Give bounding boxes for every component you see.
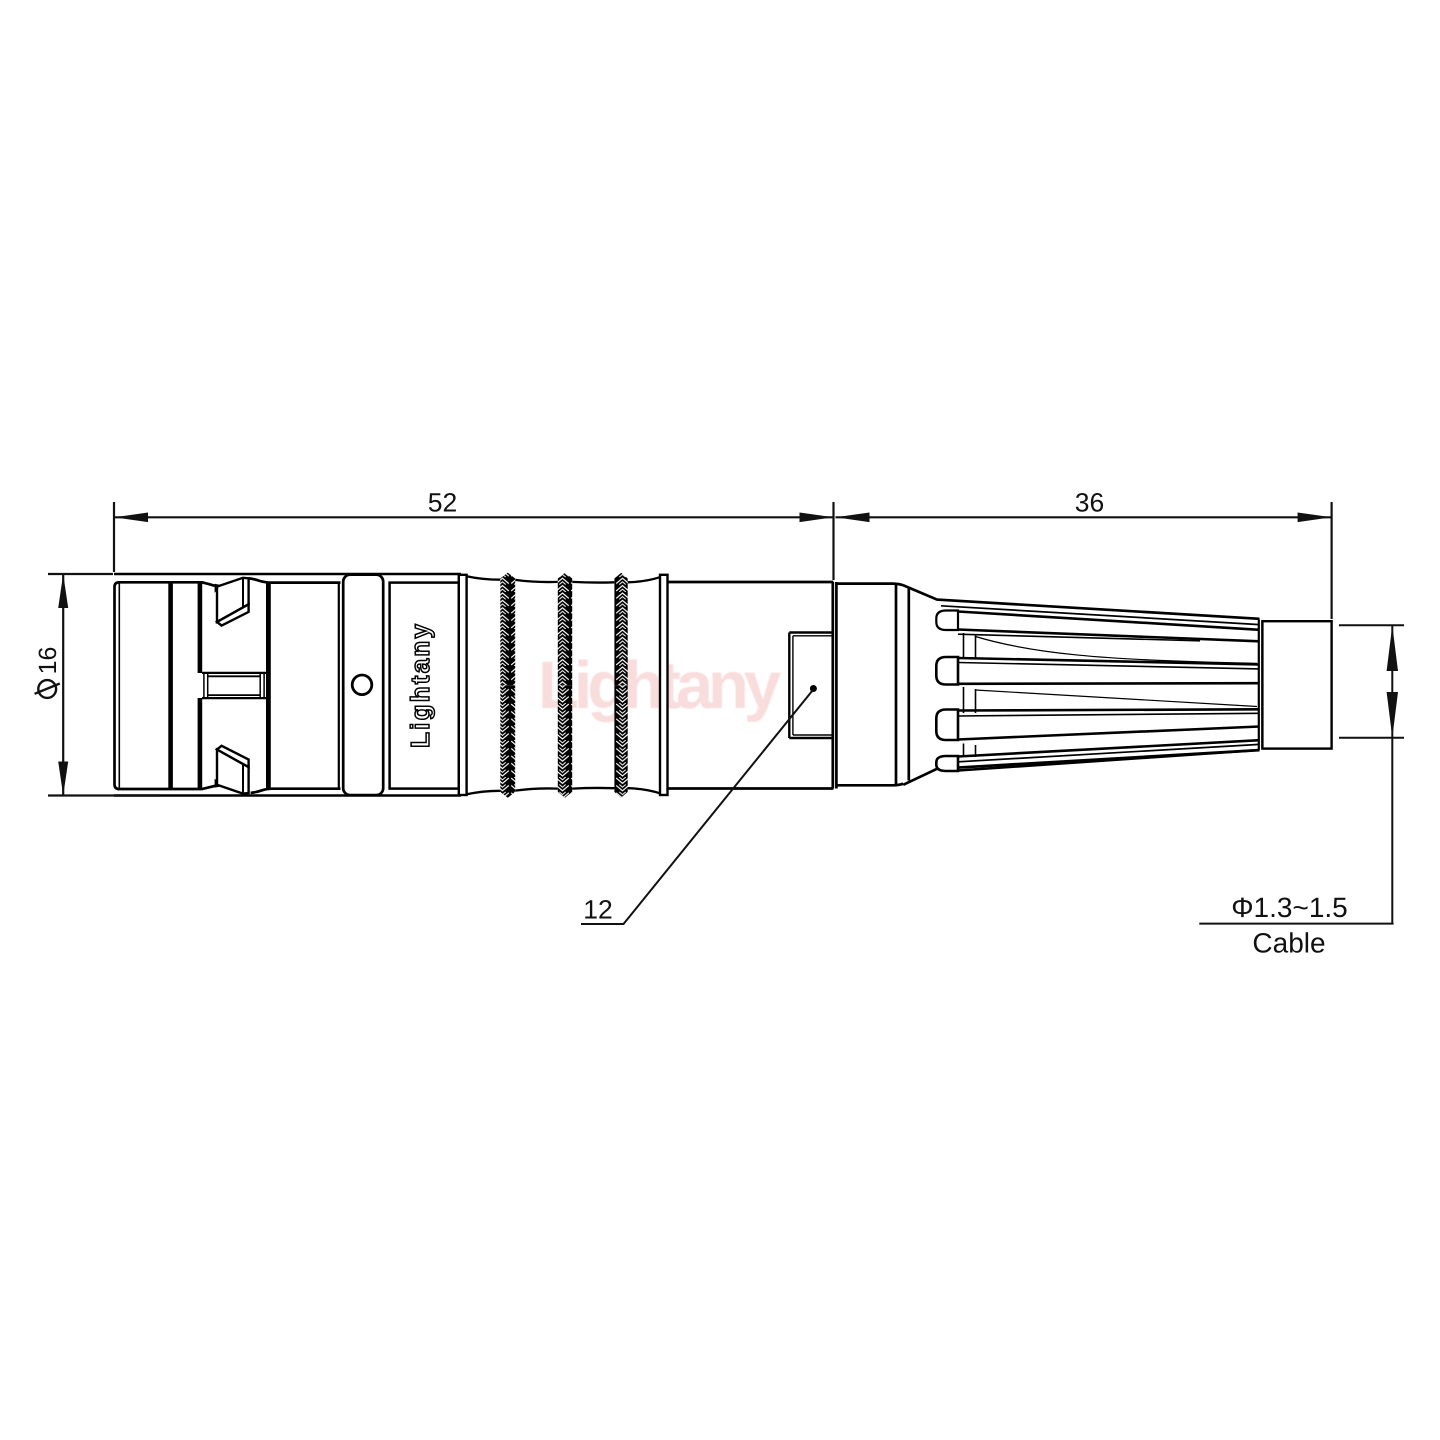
svg-text:12: 12 [583,895,612,925]
svg-text:16: 16 [34,647,62,675]
svg-text:52: 52 [428,488,457,518]
svg-text:Cable: Cable [1252,928,1325,959]
svg-text:36: 36 [1075,488,1104,518]
svg-text:Φ1.3~1.5: Φ1.3~1.5 [1231,892,1348,923]
